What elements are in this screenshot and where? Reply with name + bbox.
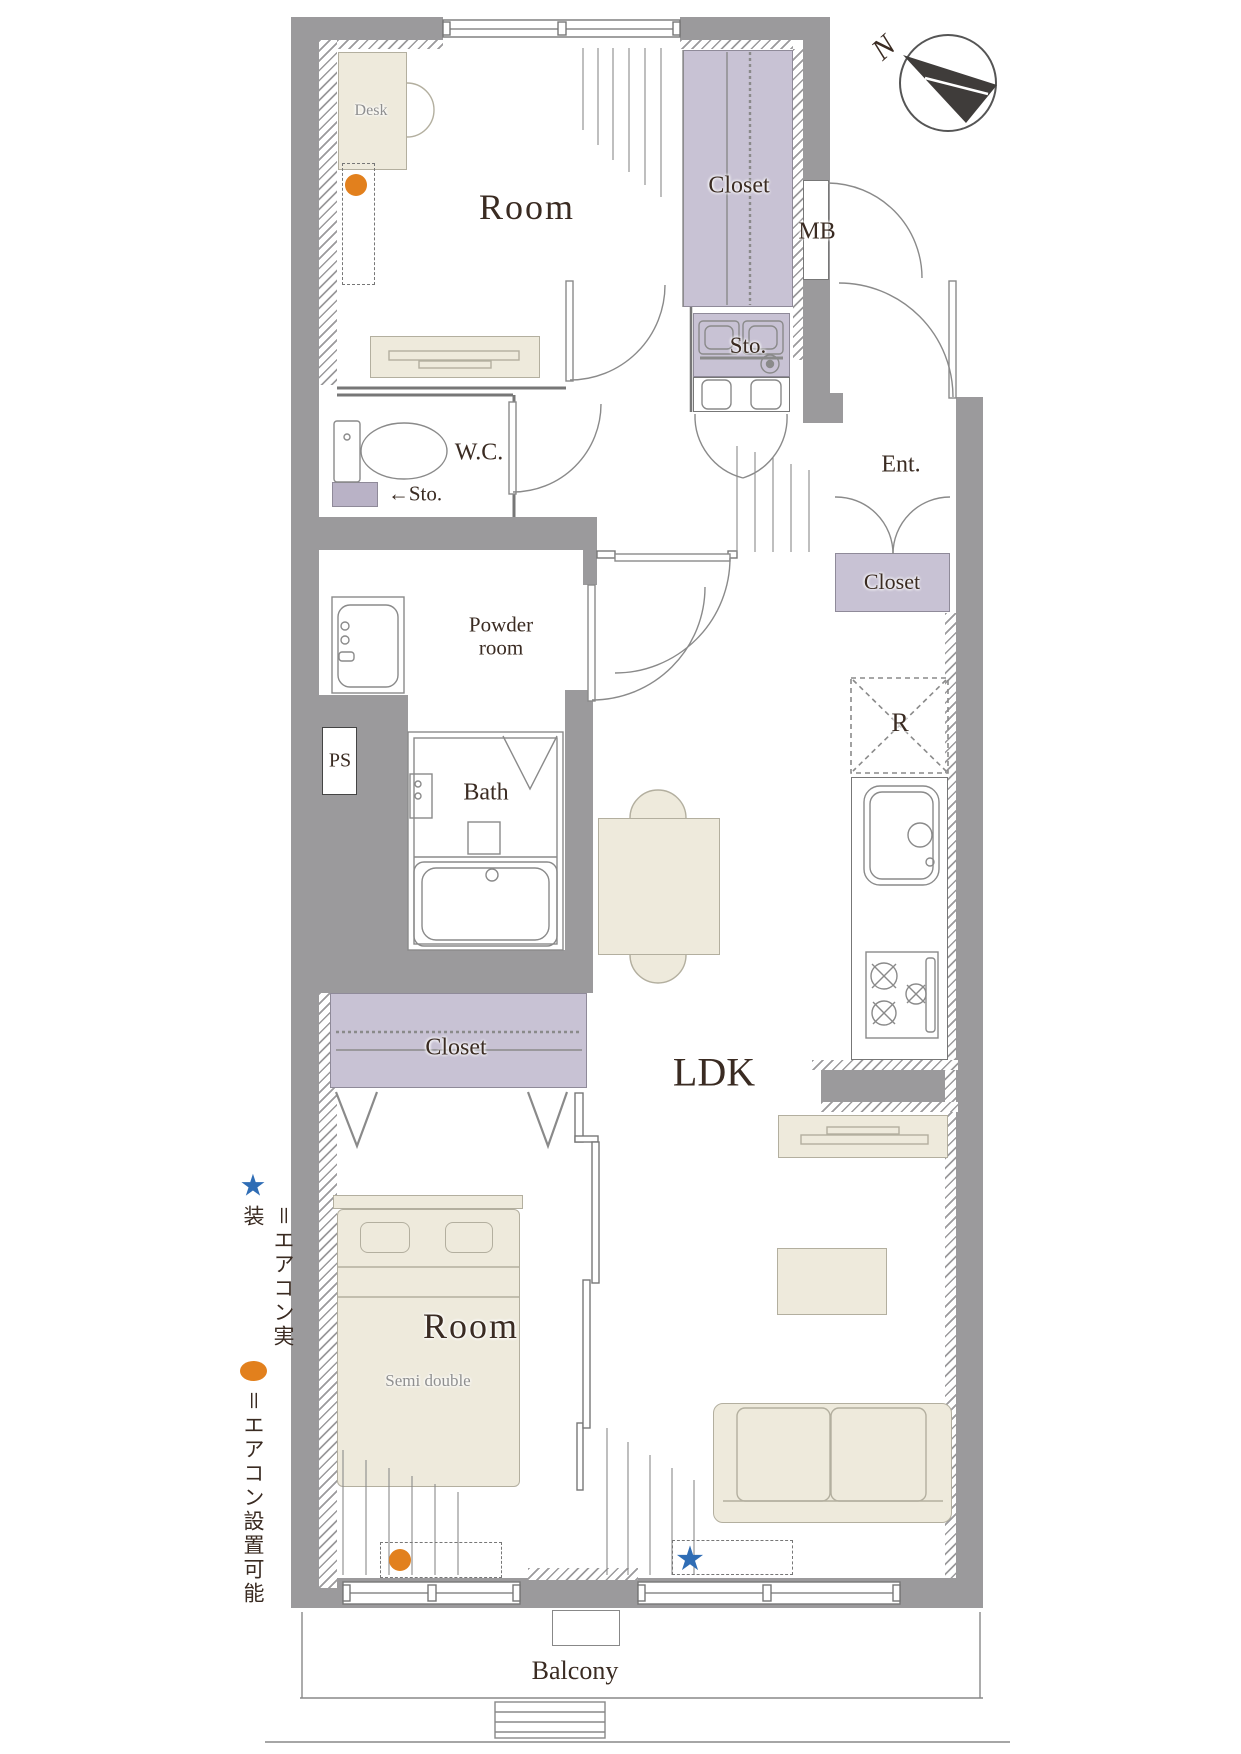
label-wc: W.C. — [455, 440, 503, 467]
bath-stool — [468, 822, 500, 854]
floor-plan: Room Desk Closet MB Sto. W.C. ←Sto. Ent.… — [0, 0, 1241, 1754]
label-closet-entrance: Closet — [864, 569, 920, 595]
sofa-seat-right — [831, 1408, 926, 1501]
legend-orange-dot-icon — [240, 1361, 267, 1381]
powder-sink-icon — [332, 597, 404, 693]
balcony-lines — [265, 1612, 1010, 1742]
label-pipe-space: PS — [329, 750, 351, 773]
legend-star-icon: ★ — [240, 1169, 267, 1204]
door-closet-entrance — [835, 497, 950, 554]
label-ldk: LDK — [673, 1049, 755, 1096]
bifold-marks-closet-middle — [336, 1092, 567, 1146]
toilet-icon — [334, 421, 447, 482]
furniture-details — [337, 83, 943, 1501]
label-bath: Bath — [463, 780, 508, 807]
door-meter-box — [828, 183, 922, 278]
kitchen-sink-icon — [864, 786, 939, 885]
hall-step-lines — [737, 446, 809, 552]
dining-chair-bottom — [630, 955, 686, 983]
label-closet-top: Closet — [708, 173, 769, 200]
window-top — [443, 20, 680, 37]
label-storage-wc: ←Sto. — [388, 482, 442, 507]
label-semi-double: Semi double — [385, 1371, 470, 1391]
label-entrance: Ent. — [881, 452, 920, 479]
label-desk: Desk — [355, 102, 388, 120]
window-bottom-left — [343, 1582, 520, 1604]
ac-installed-star-ldk: ★ — [675, 1539, 705, 1579]
label-room-bottom: Room — [423, 1305, 519, 1347]
sofa-seat-left — [737, 1408, 830, 1501]
label-closet-middle: Closet — [425, 1035, 486, 1062]
door-entrance — [839, 281, 956, 398]
desk-chair — [407, 83, 434, 137]
bath-unit — [408, 732, 563, 950]
partition-lines — [337, 50, 737, 1490]
sliding-door-panels — [583, 1142, 599, 1428]
label-meter-box: MB — [798, 219, 835, 246]
label-powder-1: Powder — [469, 613, 533, 638]
door-powder — [588, 585, 705, 701]
label-refrigerator: R — [891, 708, 908, 738]
ac-possible-dot-room-bottom — [389, 1549, 411, 1571]
legend-aircon-installed-text: ＝エアコン実装 — [238, 1205, 298, 1355]
label-room-top: Room — [479, 186, 575, 228]
ac-possible-dot-room-top — [345, 174, 367, 196]
label-powder-2: room — [479, 636, 523, 661]
curtain-lines-room-top — [583, 48, 661, 197]
linework-layer — [0, 0, 1241, 1754]
legend-aircon-possible-text: ＝エアコン設置可能 — [238, 1390, 268, 1740]
bath-folding-door — [503, 736, 557, 789]
door-wc — [509, 402, 601, 494]
kitchen-stove-icon — [866, 952, 938, 1038]
door-hall-ldk — [615, 554, 730, 673]
compass-icon — [900, 35, 997, 131]
label-balcony: Balcony — [532, 1656, 619, 1686]
dining-chair-top — [630, 790, 686, 818]
label-storage-top: Sto. — [730, 333, 766, 359]
door-room-top — [566, 281, 665, 381]
window-bottom-right — [638, 1582, 900, 1604]
